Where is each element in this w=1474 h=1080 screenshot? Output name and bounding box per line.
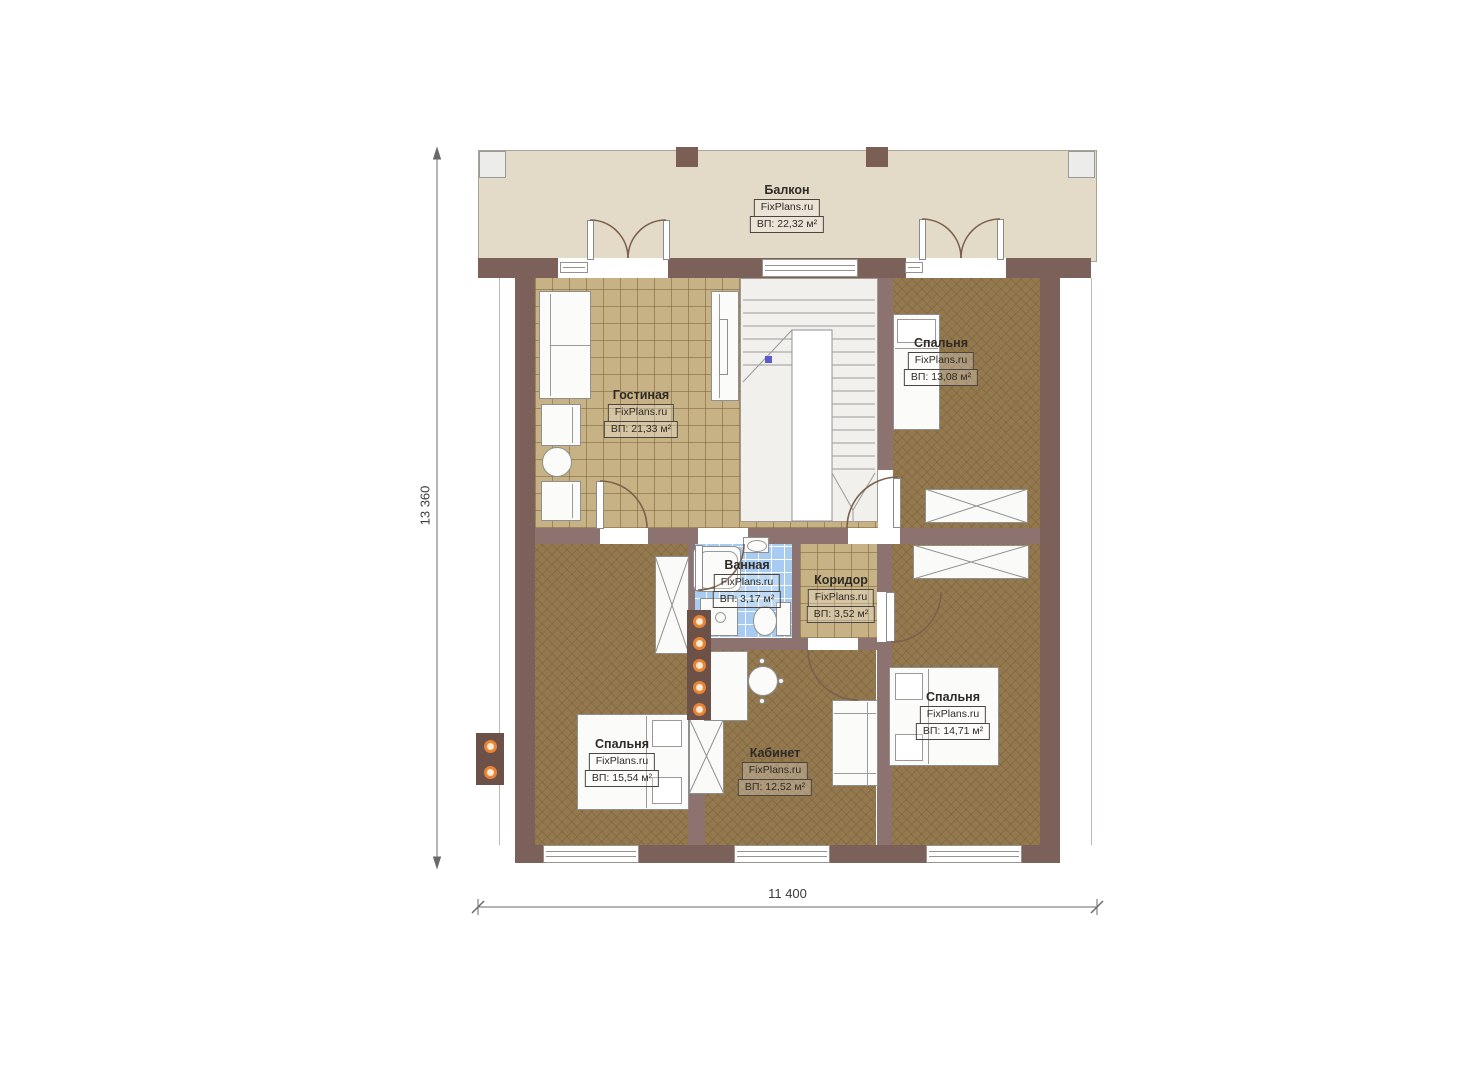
wall-left bbox=[515, 278, 535, 845]
area-label: ВП: 3,52 м² bbox=[807, 606, 875, 624]
room-name: Спальня bbox=[914, 336, 968, 350]
exterior-chimney bbox=[476, 733, 504, 785]
brand-label: FixPlans.ru bbox=[920, 706, 987, 724]
dimension-height-label: 13 360 bbox=[417, 486, 432, 526]
brand-label: FixPlans.ru bbox=[754, 199, 821, 217]
staircase bbox=[740, 278, 878, 524]
door-leaf bbox=[997, 219, 1004, 260]
room-name: Коридор bbox=[814, 573, 868, 587]
tv-cabinet bbox=[711, 291, 739, 401]
flue-dot bbox=[693, 659, 706, 672]
opening-bedroom-left-door bbox=[600, 528, 648, 544]
armchair bbox=[541, 481, 581, 521]
room-name: Кабинет bbox=[750, 746, 801, 760]
balcony-post-right bbox=[1068, 151, 1095, 178]
wardrobe bbox=[689, 718, 724, 794]
area-label: ВП: 13,08 м² bbox=[904, 369, 978, 387]
window-top bbox=[762, 259, 858, 277]
wardrobe bbox=[925, 489, 1028, 523]
chair-knob bbox=[778, 678, 784, 684]
dimension-width-label: 11 400 bbox=[740, 886, 835, 901]
brand-label: FixPlans.ru bbox=[908, 352, 975, 370]
chair-knob bbox=[759, 698, 765, 704]
area-label: ВП: 12,52 м² bbox=[738, 779, 812, 797]
door-leaf bbox=[587, 220, 594, 260]
door-leaf bbox=[695, 545, 703, 591]
door-leaf bbox=[886, 592, 895, 642]
wall-bathroom-corridor bbox=[792, 544, 800, 638]
round-table bbox=[542, 447, 572, 477]
room-label-corridor: Коридор FixPlans.ru ВП: 3,52 м² bbox=[807, 573, 875, 623]
room-label-bedroom-bottom-right: Спальня FixPlans.ru ВП: 14,71 м² bbox=[916, 690, 990, 740]
door-leaf bbox=[919, 219, 926, 260]
room-label-bedroom-top-right: Спальня FixPlans.ru ВП: 13,08 м² bbox=[904, 336, 978, 386]
area-label: ВП: 3,17 м² bbox=[713, 591, 781, 609]
door-leaf bbox=[596, 481, 604, 529]
wall-bedroom-study bbox=[688, 793, 705, 845]
brand-label: FixPlans.ru bbox=[608, 404, 675, 422]
area-label: ВП: 22,32 м² bbox=[750, 216, 824, 234]
room-label-living: Гостиная FixPlans.ru ВП: 21,33 м² bbox=[604, 388, 678, 438]
brand-label: FixPlans.ru bbox=[742, 762, 809, 780]
door-leaf bbox=[893, 478, 901, 528]
room-label-study: Кабинет FixPlans.ru ВП: 12,52 м² bbox=[738, 746, 812, 796]
brand-label: FixPlans.ru bbox=[714, 574, 781, 592]
room-label-bathroom: Ванная FixPlans.ru ВП: 3,17 м² bbox=[713, 558, 781, 608]
sidelight-right bbox=[905, 262, 923, 273]
wall-right bbox=[1040, 278, 1060, 845]
room-name: Балкон bbox=[764, 183, 809, 197]
flue-dot bbox=[693, 637, 706, 650]
floor-plan: 13 360 11 400 Балкон FixPlans.ru ВП: 22,… bbox=[0, 0, 1474, 1080]
door-leaf bbox=[663, 220, 670, 260]
armchair bbox=[541, 404, 581, 446]
brand-label: FixPlans.ru bbox=[589, 753, 656, 771]
chimney-flue bbox=[687, 610, 711, 720]
office-chair bbox=[748, 666, 778, 696]
right-roof-outline bbox=[1091, 278, 1092, 845]
area-label: ВП: 21,33 м² bbox=[604, 421, 678, 439]
flue-dot bbox=[693, 615, 706, 628]
balcony-pillar-right bbox=[866, 147, 888, 167]
toilet-bowl bbox=[753, 606, 777, 636]
flue-dot bbox=[693, 681, 706, 694]
room-name: Гостиная bbox=[613, 388, 670, 402]
wardrobe bbox=[655, 556, 689, 654]
flue-dot bbox=[484, 740, 497, 753]
area-label: ВП: 14,71 м² bbox=[916, 723, 990, 741]
balcony-pillar-left bbox=[676, 147, 698, 167]
room-label-bedroom-bottom-left: Спальня FixPlans.ru ВП: 15,54 м² bbox=[585, 737, 659, 787]
opening-study-door bbox=[808, 638, 858, 650]
sink bbox=[743, 537, 769, 553]
opening-hall-door bbox=[848, 528, 900, 544]
window-bottom-right bbox=[926, 845, 1022, 863]
room-label-balcony: Балкон FixPlans.ru ВП: 22,32 м² bbox=[750, 183, 824, 233]
sofa-study bbox=[832, 700, 878, 786]
window-bottom-left bbox=[543, 845, 639, 863]
area-label: ВП: 15,54 м² bbox=[585, 770, 659, 788]
balcony-post-left bbox=[479, 151, 506, 178]
sofa-living bbox=[539, 291, 591, 399]
opening-bathroom-door bbox=[698, 528, 748, 544]
chair-knob bbox=[759, 658, 765, 664]
wardrobe bbox=[913, 545, 1029, 579]
room-name: Ванная bbox=[724, 558, 769, 572]
room-name: Спальня bbox=[926, 690, 980, 704]
brand-label: FixPlans.ru bbox=[808, 589, 875, 607]
sidelight-left bbox=[560, 262, 588, 273]
room-name: Спальня bbox=[595, 737, 649, 751]
flue-dot bbox=[693, 703, 706, 716]
wall-stair-bedroom bbox=[878, 278, 893, 470]
flue-dot bbox=[484, 766, 497, 779]
window-bottom-center bbox=[734, 845, 830, 863]
